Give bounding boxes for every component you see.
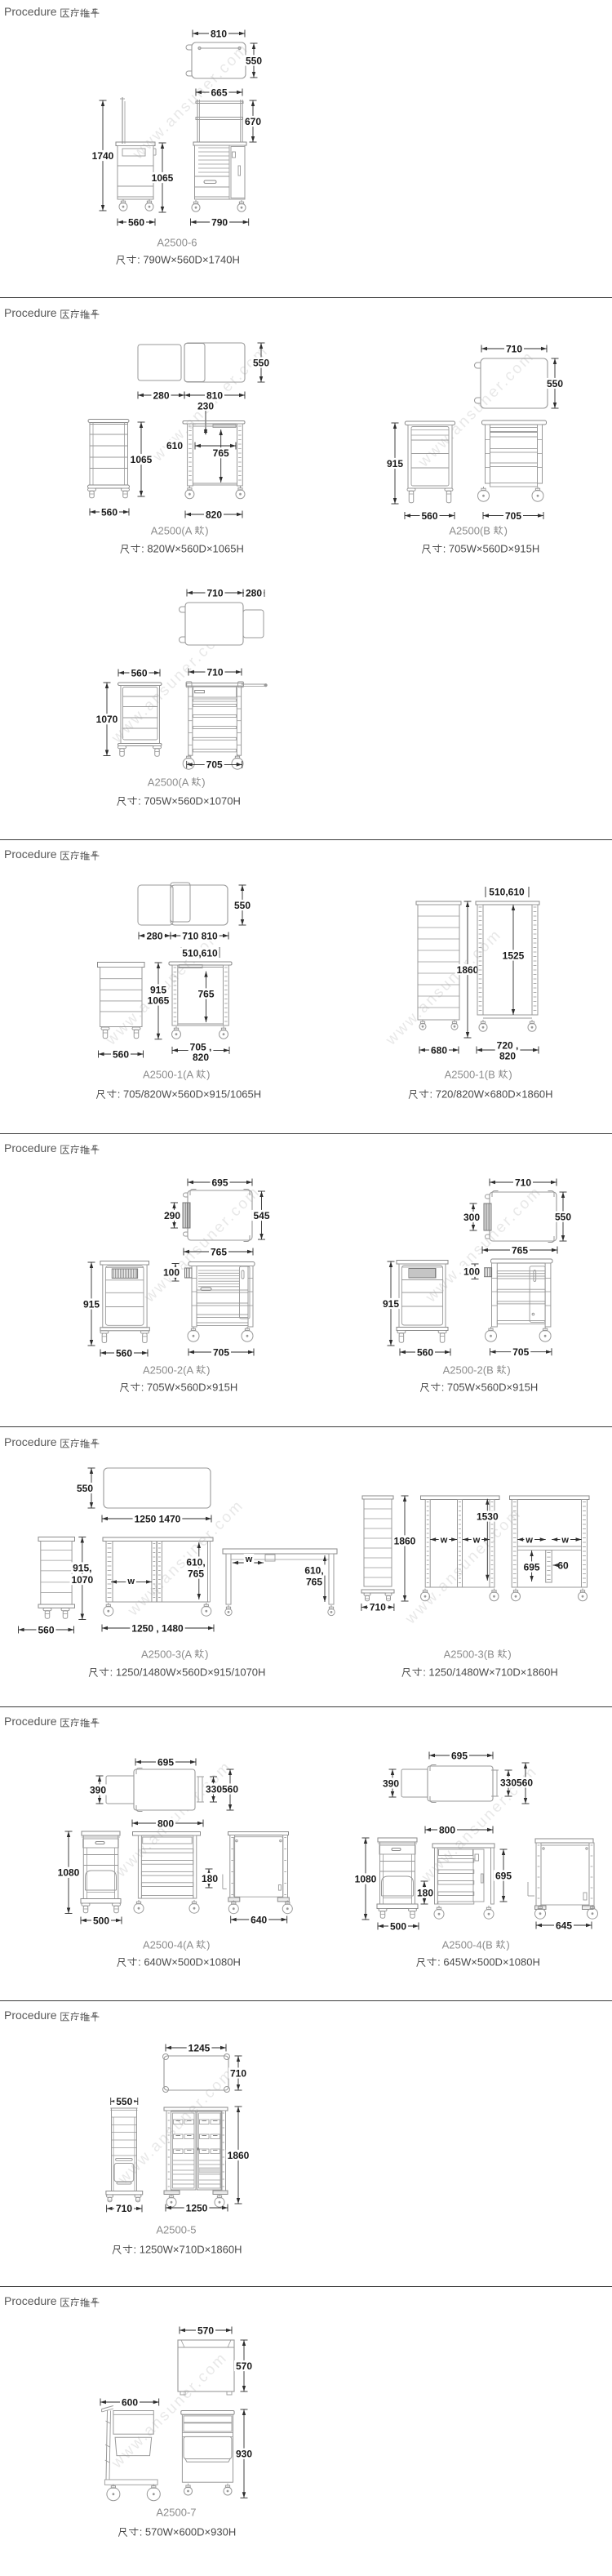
svg-text:: 640W×500D×1080H: : 640W×500D×1080H xyxy=(138,1956,241,1969)
svg-text:765: 765 xyxy=(512,1244,528,1256)
svg-text:1245: 1245 xyxy=(188,2042,211,2053)
svg-text:510,610: 510,610 xyxy=(182,947,218,959)
svg-text:765: 765 xyxy=(197,988,214,999)
svg-text:): ) xyxy=(206,1364,210,1377)
svg-text:Procedure: Procedure xyxy=(4,306,57,319)
svg-text:915: 915 xyxy=(150,984,166,995)
svg-text:: 1250W×710D×1860H: : 1250W×710D×1860H xyxy=(134,2244,242,2256)
svg-text:w: w xyxy=(245,1555,253,1564)
svg-text:765: 765 xyxy=(188,1568,204,1579)
svg-text:: 705/820W×560D×915/1065H: : 705/820W×560D×915/1065H xyxy=(118,1088,261,1101)
svg-text:Procedure: Procedure xyxy=(4,5,57,18)
svg-text:A2500-2(A: A2500-2(A xyxy=(143,1364,193,1377)
svg-text:280: 280 xyxy=(146,930,162,941)
svg-text:1070: 1070 xyxy=(71,1574,93,1586)
svg-text:w: w xyxy=(126,1577,135,1586)
svg-text:930: 930 xyxy=(236,2449,252,2460)
svg-text:550: 550 xyxy=(253,357,269,368)
svg-text:705: 705 xyxy=(512,1346,529,1358)
svg-text:1080: 1080 xyxy=(355,1873,377,1884)
svg-text:710 810: 710 810 xyxy=(182,930,218,941)
svg-text:695: 695 xyxy=(495,1870,512,1881)
svg-text:695: 695 xyxy=(157,1756,174,1768)
svg-text:300: 300 xyxy=(463,1212,480,1223)
svg-text:A2500(A: A2500(A xyxy=(151,525,193,537)
svg-text:390: 390 xyxy=(383,1777,399,1789)
svg-text:A2500(A: A2500(A xyxy=(148,776,189,789)
svg-text:1860: 1860 xyxy=(394,1535,416,1546)
svg-text:w: w xyxy=(525,1536,533,1546)
svg-text:720 ,: 720 , xyxy=(497,1039,519,1051)
svg-text:510,610: 510,610 xyxy=(489,886,525,897)
svg-text:500: 500 xyxy=(390,1920,406,1932)
svg-text:670: 670 xyxy=(245,116,261,127)
svg-text:550: 550 xyxy=(246,55,262,66)
svg-text:550: 550 xyxy=(77,1483,93,1494)
svg-text:810: 810 xyxy=(206,389,223,401)
svg-text:570: 570 xyxy=(236,2360,252,2372)
svg-text:695: 695 xyxy=(451,1750,468,1761)
svg-text:A2500-5: A2500-5 xyxy=(156,2224,196,2236)
svg-text:560: 560 xyxy=(128,216,144,228)
svg-text:915: 915 xyxy=(383,1298,399,1310)
svg-text:290: 290 xyxy=(164,1210,180,1221)
svg-text:560: 560 xyxy=(131,667,147,678)
svg-text:Procedure: Procedure xyxy=(4,1435,57,1448)
svg-text:600: 600 xyxy=(122,2396,138,2408)
svg-text:1080: 1080 xyxy=(58,1867,80,1879)
svg-text:800: 800 xyxy=(439,1824,455,1835)
svg-text:680: 680 xyxy=(431,1044,447,1056)
svg-text:: 570W×600D×930H: : 570W×600D×930H xyxy=(140,2526,237,2538)
svg-text:710: 710 xyxy=(515,1177,531,1188)
svg-text:): ) xyxy=(504,525,508,537)
svg-text:: 705W×560D×1070H: : 705W×560D×1070H xyxy=(138,795,241,808)
svg-text:Procedure: Procedure xyxy=(4,2294,57,2307)
svg-text:915: 915 xyxy=(387,458,403,469)
svg-text:610,: 610, xyxy=(186,1556,205,1568)
svg-text:1525: 1525 xyxy=(503,950,525,961)
svg-text:w: w xyxy=(472,1536,481,1546)
svg-text:1065: 1065 xyxy=(152,172,174,184)
svg-text:): ) xyxy=(202,776,205,789)
svg-text:): ) xyxy=(206,1939,210,1951)
svg-text:: 1250/1480W×710D×1860H: : 1250/1480W×710D×1860H xyxy=(423,1666,558,1679)
svg-text:180: 180 xyxy=(417,1887,433,1898)
svg-text:230: 230 xyxy=(197,400,214,412)
svg-text:765: 765 xyxy=(211,1246,227,1257)
svg-text:1070: 1070 xyxy=(96,714,118,725)
svg-text:695: 695 xyxy=(211,1177,228,1188)
svg-text:: 720/820W×680D×1860H: : 720/820W×680D×1860H xyxy=(430,1088,553,1101)
svg-text:610: 610 xyxy=(166,440,183,452)
svg-text:710: 710 xyxy=(370,1602,386,1613)
svg-text:: 705W×560D×915H: : 705W×560D×915H xyxy=(441,1381,539,1394)
svg-text:710: 710 xyxy=(116,2203,132,2214)
svg-text:Procedure: Procedure xyxy=(4,2009,57,2022)
svg-text:705: 705 xyxy=(213,1346,229,1358)
svg-text:1065: 1065 xyxy=(131,454,153,465)
svg-text:1740: 1740 xyxy=(92,150,114,162)
svg-text:1250: 1250 xyxy=(186,2202,208,2213)
svg-text:545: 545 xyxy=(253,1210,269,1221)
svg-text:: 790W×560D×1740H: : 790W×560D×1740H xyxy=(137,254,240,266)
svg-text:705: 705 xyxy=(505,510,521,522)
svg-text:A2500-3(B: A2500-3(B xyxy=(444,1648,494,1661)
svg-text:www.ansuner.com: www.ansuner.com xyxy=(382,926,505,1049)
svg-text:330560: 330560 xyxy=(206,1783,238,1795)
svg-text:560: 560 xyxy=(116,1347,132,1359)
svg-text:640: 640 xyxy=(251,1914,267,1925)
svg-text:A2500-4(A: A2500-4(A xyxy=(143,1939,193,1951)
svg-text:820: 820 xyxy=(193,1052,209,1063)
svg-text:A2500-6: A2500-6 xyxy=(157,237,197,249)
svg-text:w: w xyxy=(440,1536,448,1546)
svg-text:710: 710 xyxy=(206,666,223,678)
svg-text:710: 710 xyxy=(230,2067,246,2079)
svg-text:280: 280 xyxy=(153,389,169,401)
svg-text:550: 550 xyxy=(116,2096,132,2107)
svg-text:A2500-3(A: A2500-3(A xyxy=(141,1648,192,1661)
svg-text:550: 550 xyxy=(555,1211,571,1222)
svg-text:765: 765 xyxy=(213,447,229,459)
svg-text:): ) xyxy=(508,1069,512,1081)
svg-text:820: 820 xyxy=(206,509,222,520)
svg-text:705: 705 xyxy=(206,759,223,771)
svg-text:www.ansuner.com: www.ansuner.com xyxy=(401,1505,525,1628)
svg-text:): ) xyxy=(507,1364,510,1377)
svg-text:): ) xyxy=(205,1648,208,1661)
svg-text:): ) xyxy=(508,1648,511,1661)
svg-text:A2500-1(A: A2500-1(A xyxy=(143,1069,193,1081)
svg-text:550: 550 xyxy=(234,900,251,911)
svg-text:560: 560 xyxy=(417,1346,433,1358)
svg-text:A2500-2(B: A2500-2(B xyxy=(443,1364,494,1377)
svg-text:: 705W×560D×915H: : 705W×560D×915H xyxy=(141,1381,238,1394)
svg-text:A2500(B: A2500(B xyxy=(449,525,490,537)
svg-text:560: 560 xyxy=(38,1624,54,1635)
svg-text:Procedure: Procedure xyxy=(4,1715,57,1728)
svg-text:665: 665 xyxy=(211,87,227,98)
svg-text:550: 550 xyxy=(547,378,563,389)
svg-text:570: 570 xyxy=(197,2325,214,2336)
svg-text:100: 100 xyxy=(163,1267,180,1279)
svg-text:w: w xyxy=(561,1536,569,1546)
svg-text:765: 765 xyxy=(306,1576,322,1587)
svg-text:180: 180 xyxy=(202,1873,218,1884)
svg-text:1250 , 1480: 1250 , 1480 xyxy=(131,1622,184,1634)
svg-text:915,: 915, xyxy=(73,1562,91,1573)
svg-text:Procedure: Procedure xyxy=(4,848,57,861)
svg-text:A2500-4(B: A2500-4(B xyxy=(442,1939,493,1951)
svg-text:710: 710 xyxy=(506,343,522,354)
svg-text:695: 695 xyxy=(524,1561,540,1573)
svg-text:560: 560 xyxy=(421,510,437,522)
svg-text:100: 100 xyxy=(463,1266,480,1278)
svg-text:1530: 1530 xyxy=(477,1510,499,1522)
svg-text:): ) xyxy=(206,1069,210,1081)
svg-text:810: 810 xyxy=(211,28,227,39)
svg-text:710: 710 xyxy=(206,587,223,598)
svg-text:915: 915 xyxy=(83,1298,100,1310)
svg-text:: 820W×560D×1065H: : 820W×560D×1065H xyxy=(141,543,244,555)
svg-text:800: 800 xyxy=(157,1817,174,1829)
svg-text:A2500-1(B: A2500-1(B xyxy=(445,1069,495,1081)
svg-text:330560: 330560 xyxy=(500,1777,533,1788)
svg-text:1860: 1860 xyxy=(457,964,479,976)
svg-text:560: 560 xyxy=(113,1048,129,1060)
svg-text:A2500-7: A2500-7 xyxy=(156,2507,196,2519)
svg-text:500: 500 xyxy=(93,1915,109,1926)
svg-text:280: 280 xyxy=(246,587,262,598)
svg-text:820: 820 xyxy=(499,1050,516,1061)
svg-text:610,: 610, xyxy=(304,1564,323,1576)
svg-text:: 705W×560D×915H: : 705W×560D×915H xyxy=(443,543,540,555)
svg-text:790: 790 xyxy=(211,216,228,228)
svg-text:): ) xyxy=(205,525,208,537)
svg-text:Procedure: Procedure xyxy=(4,1141,57,1155)
svg-text:1860: 1860 xyxy=(228,2150,250,2161)
svg-text:: 645W×500D×1080H: : 645W×500D×1080H xyxy=(437,1956,540,1969)
svg-text:645: 645 xyxy=(556,1920,572,1931)
svg-text:390: 390 xyxy=(90,1784,106,1795)
svg-text:): ) xyxy=(506,1939,509,1951)
svg-text:: 1250/1480W×560D×915/1070H: : 1250/1480W×560D×915/1070H xyxy=(110,1666,266,1679)
svg-text:1250 1470: 1250 1470 xyxy=(135,1513,181,1524)
svg-text:560: 560 xyxy=(101,506,118,518)
svg-text:1065: 1065 xyxy=(148,994,170,1006)
